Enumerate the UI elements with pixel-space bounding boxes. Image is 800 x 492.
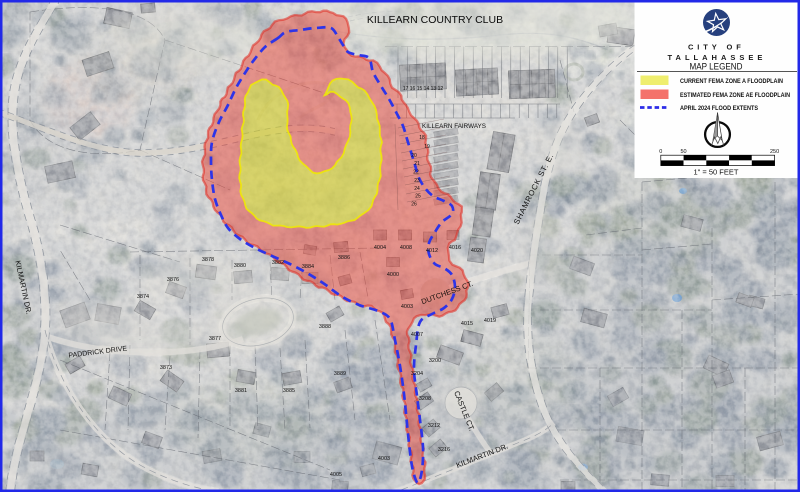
svg-text:KILLEARN COUNTRY CLUB: KILLEARN COUNTRY CLUB (367, 14, 503, 26)
svg-text:APRIL 2024 FLOOD EXTENTS: APRIL 2024 FLOOD EXTENTS (680, 105, 759, 112)
svg-text:22: 22 (413, 170, 419, 176)
svg-text:26: 26 (411, 202, 417, 208)
svg-text:3200: 3200 (429, 358, 441, 364)
svg-text:20: 20 (411, 153, 417, 159)
svg-text:4000: 4000 (387, 272, 399, 278)
svg-text:24: 24 (414, 186, 420, 192)
svg-text:3884: 3884 (302, 264, 314, 270)
svg-text:4008: 4008 (400, 245, 412, 251)
svg-text:4007: 4007 (411, 332, 423, 338)
svg-text:3886: 3886 (338, 255, 350, 261)
svg-text:4019: 4019 (484, 318, 496, 324)
svg-text:3204: 3204 (411, 371, 423, 377)
svg-text:0: 0 (659, 149, 662, 155)
svg-text:CURRENT FEMA ZONE A FLOODPLAIN: CURRENT FEMA ZONE A FLOODPLAIN (680, 78, 783, 85)
svg-text:250: 250 (770, 149, 779, 155)
svg-text:23: 23 (414, 178, 420, 184)
svg-text:4020: 4020 (471, 248, 483, 254)
svg-text:25: 25 (415, 194, 421, 200)
svg-text:3876: 3876 (167, 277, 179, 283)
svg-text:4005: 4005 (330, 472, 342, 478)
svg-text:3881: 3881 (235, 388, 247, 394)
svg-text:3877: 3877 (209, 336, 221, 342)
svg-text:21: 21 (414, 161, 420, 167)
svg-text:4003: 4003 (401, 304, 413, 310)
svg-text:ESTIMATED FEMA ZONE AE FLOODPL: ESTIMATED FEMA ZONE AE FLOODPLAIN (680, 92, 790, 99)
svg-text:4004: 4004 (374, 245, 386, 251)
svg-text:3878: 3878 (202, 257, 214, 263)
svg-text:50: 50 (680, 149, 686, 155)
svg-text:3885: 3885 (283, 388, 295, 394)
svg-text:3873: 3873 (160, 365, 172, 371)
svg-text:3880: 3880 (234, 263, 246, 269)
svg-text:KILLEARN FAIRWAYS: KILLEARN FAIRWAYS (422, 123, 486, 130)
svg-text:3208: 3208 (419, 396, 431, 402)
svg-text:3874: 3874 (137, 294, 149, 300)
svg-text:3889: 3889 (334, 371, 346, 377)
svg-text:3212: 3212 (428, 423, 440, 429)
svg-text:3888: 3888 (319, 324, 331, 330)
svg-text:4003: 4003 (378, 456, 390, 462)
svg-text:17 16 15 14 13 12: 17 16 15 14 13 12 (403, 86, 444, 92)
svg-text:MAP LEGEND: MAP LEGEND (690, 62, 743, 72)
svg-text:3216: 3216 (438, 447, 450, 453)
svg-text:CITY OF: CITY OF (688, 43, 744, 52)
svg-text:4012: 4012 (426, 248, 438, 254)
svg-text:19: 19 (424, 144, 430, 150)
svg-text:18: 18 (419, 135, 425, 141)
svg-text:4016: 4016 (449, 245, 461, 251)
svg-text:4015: 4015 (461, 321, 473, 327)
svg-text:1" = 50 FEET: 1" = 50 FEET (694, 168, 739, 177)
svg-text:3882: 3882 (272, 260, 284, 266)
